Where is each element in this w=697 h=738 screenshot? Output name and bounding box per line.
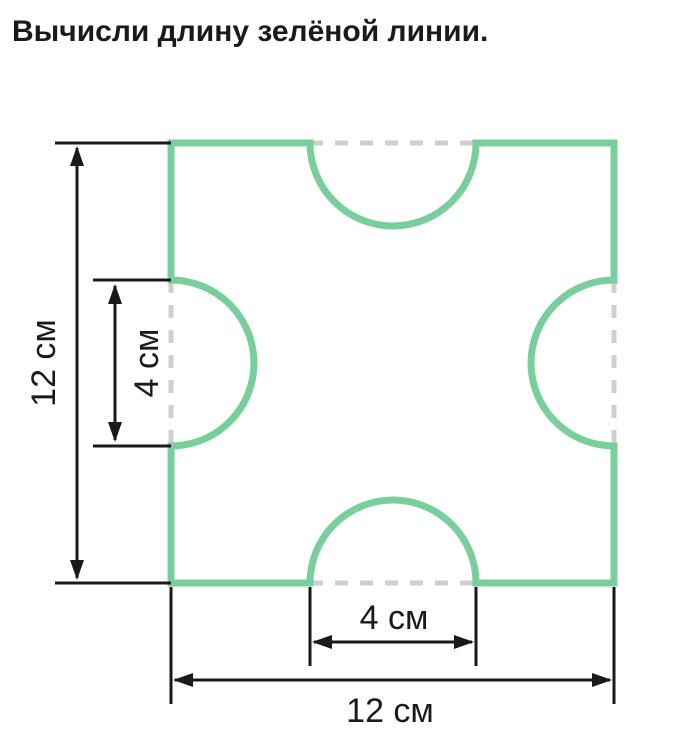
dim-label-left-outer: 12 см [25,319,63,407]
green-outline-path [171,143,614,583]
figure-canvas: 12 см 4 см 4 см 12 см [0,0,697,738]
arrowhead-up-left-outer [70,146,84,166]
arrowhead-up-left-inner [108,284,122,304]
dim-label-bottom-inner: 4 см [360,599,429,637]
arrowhead-right-bottom-inner [454,635,474,649]
dimension-left-inner: 4 см [93,280,171,446]
arrowhead-left-bottom-outer [173,673,193,687]
arrowhead-left-bottom-inner [312,635,332,649]
problem-card: Вычисли длину зелёной линии. 12 см [0,0,697,738]
dimension-bottom-inner: 4 см [310,587,476,666]
arrowhead-right-bottom-outer [592,673,612,687]
dim-label-left-inner: 4 см [128,329,166,398]
arrowhead-down-left-inner [108,422,122,442]
arrowhead-down-left-outer [70,560,84,580]
dashed-diameters [171,143,614,583]
dim-label-bottom-outer: 12 см [346,692,434,730]
